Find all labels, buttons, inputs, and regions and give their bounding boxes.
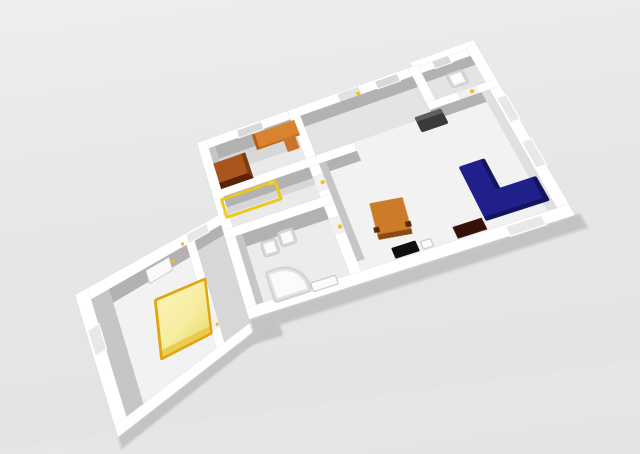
bed-post <box>268 180 274 186</box>
table-leg <box>405 221 412 227</box>
main-block <box>197 44 575 319</box>
table-leg <box>373 227 380 233</box>
bed-post <box>223 210 229 216</box>
wing-block <box>75 215 253 437</box>
3d-floorplan-viewport[interactable] <box>0 0 640 454</box>
